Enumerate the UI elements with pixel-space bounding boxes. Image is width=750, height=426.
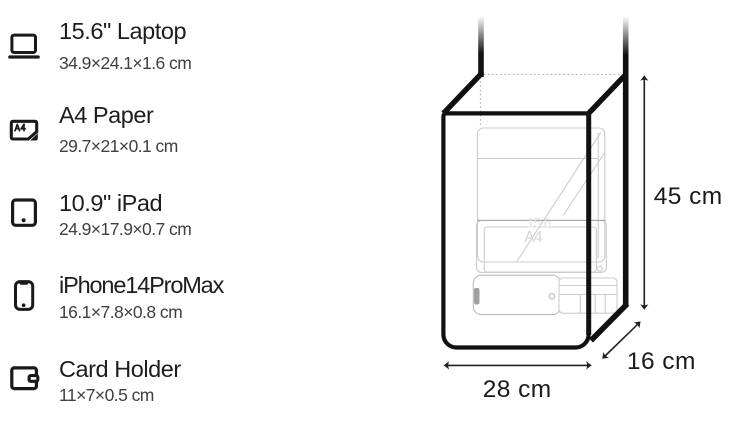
svg-text:A4: A4 xyxy=(524,229,543,246)
